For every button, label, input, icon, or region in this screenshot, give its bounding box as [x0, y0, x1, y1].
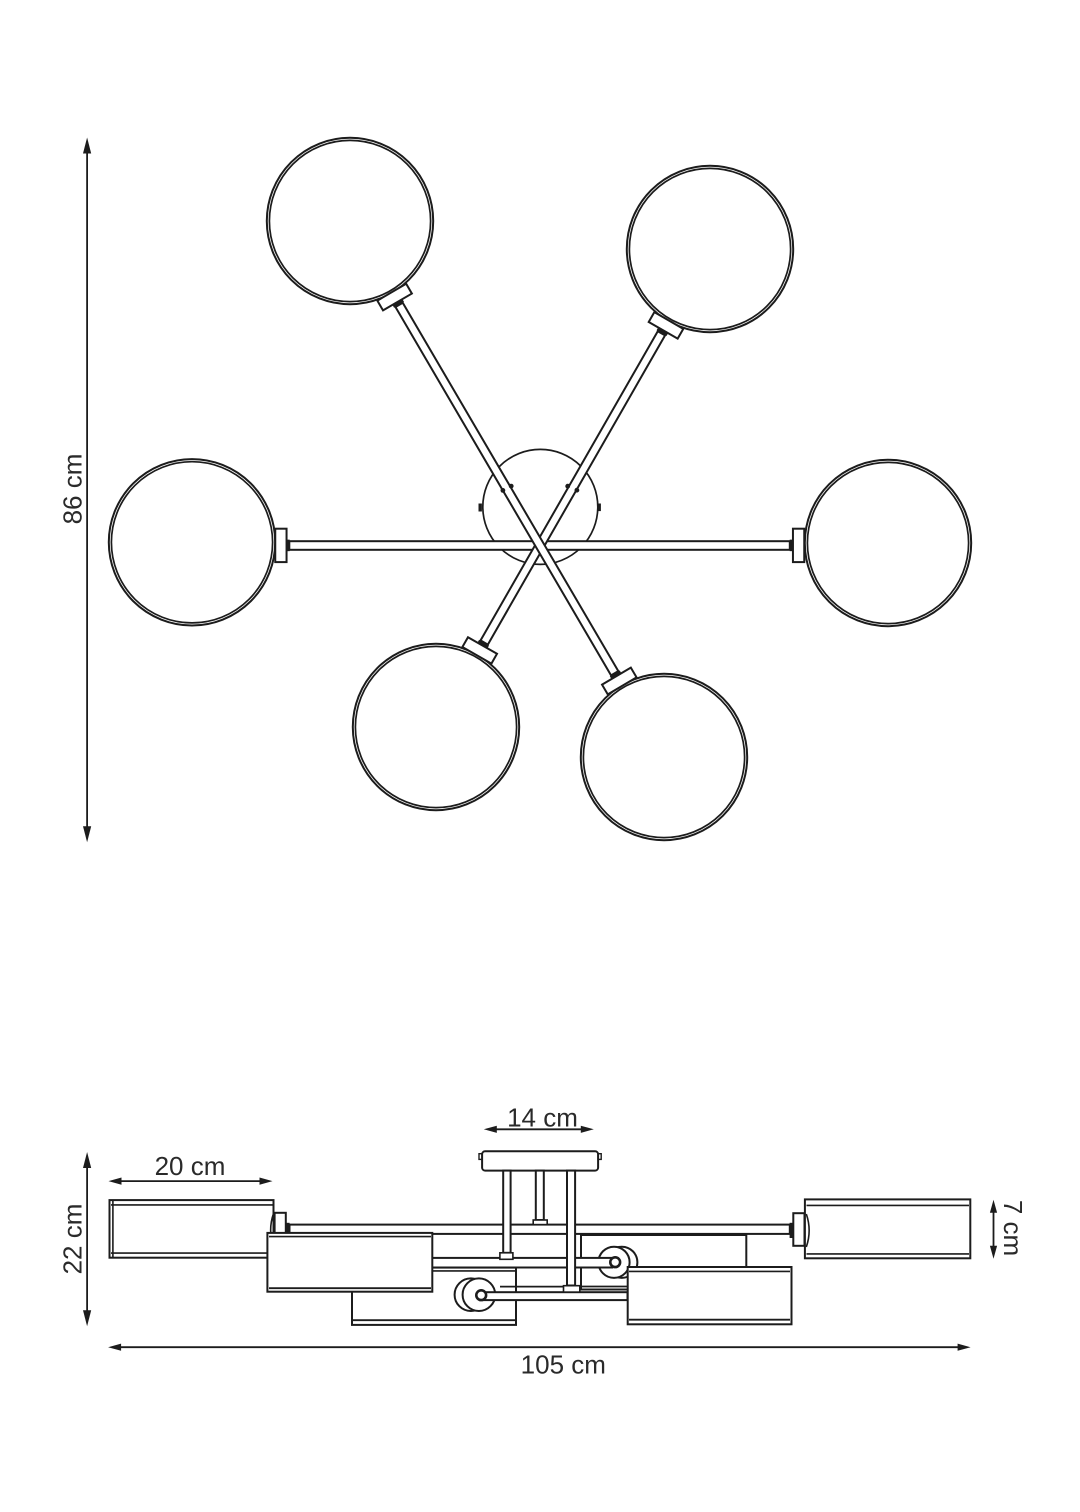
svg-text:105 cm: 105 cm [521, 1350, 606, 1380]
svg-text:20 cm: 20 cm [155, 1151, 226, 1181]
svg-text:14 cm: 14 cm [507, 1103, 578, 1133]
svg-text:7 cm: 7 cm [998, 1200, 1028, 1256]
svg-text:22 cm: 22 cm [58, 1204, 88, 1275]
svg-text:86 cm: 86 cm [58, 454, 88, 525]
